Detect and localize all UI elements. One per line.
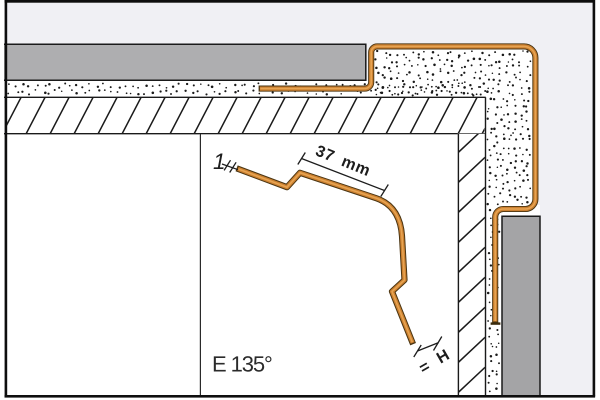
- svg-text:E 135°: E 135°: [212, 352, 272, 377]
- svg-text:1: 1: [213, 149, 226, 174]
